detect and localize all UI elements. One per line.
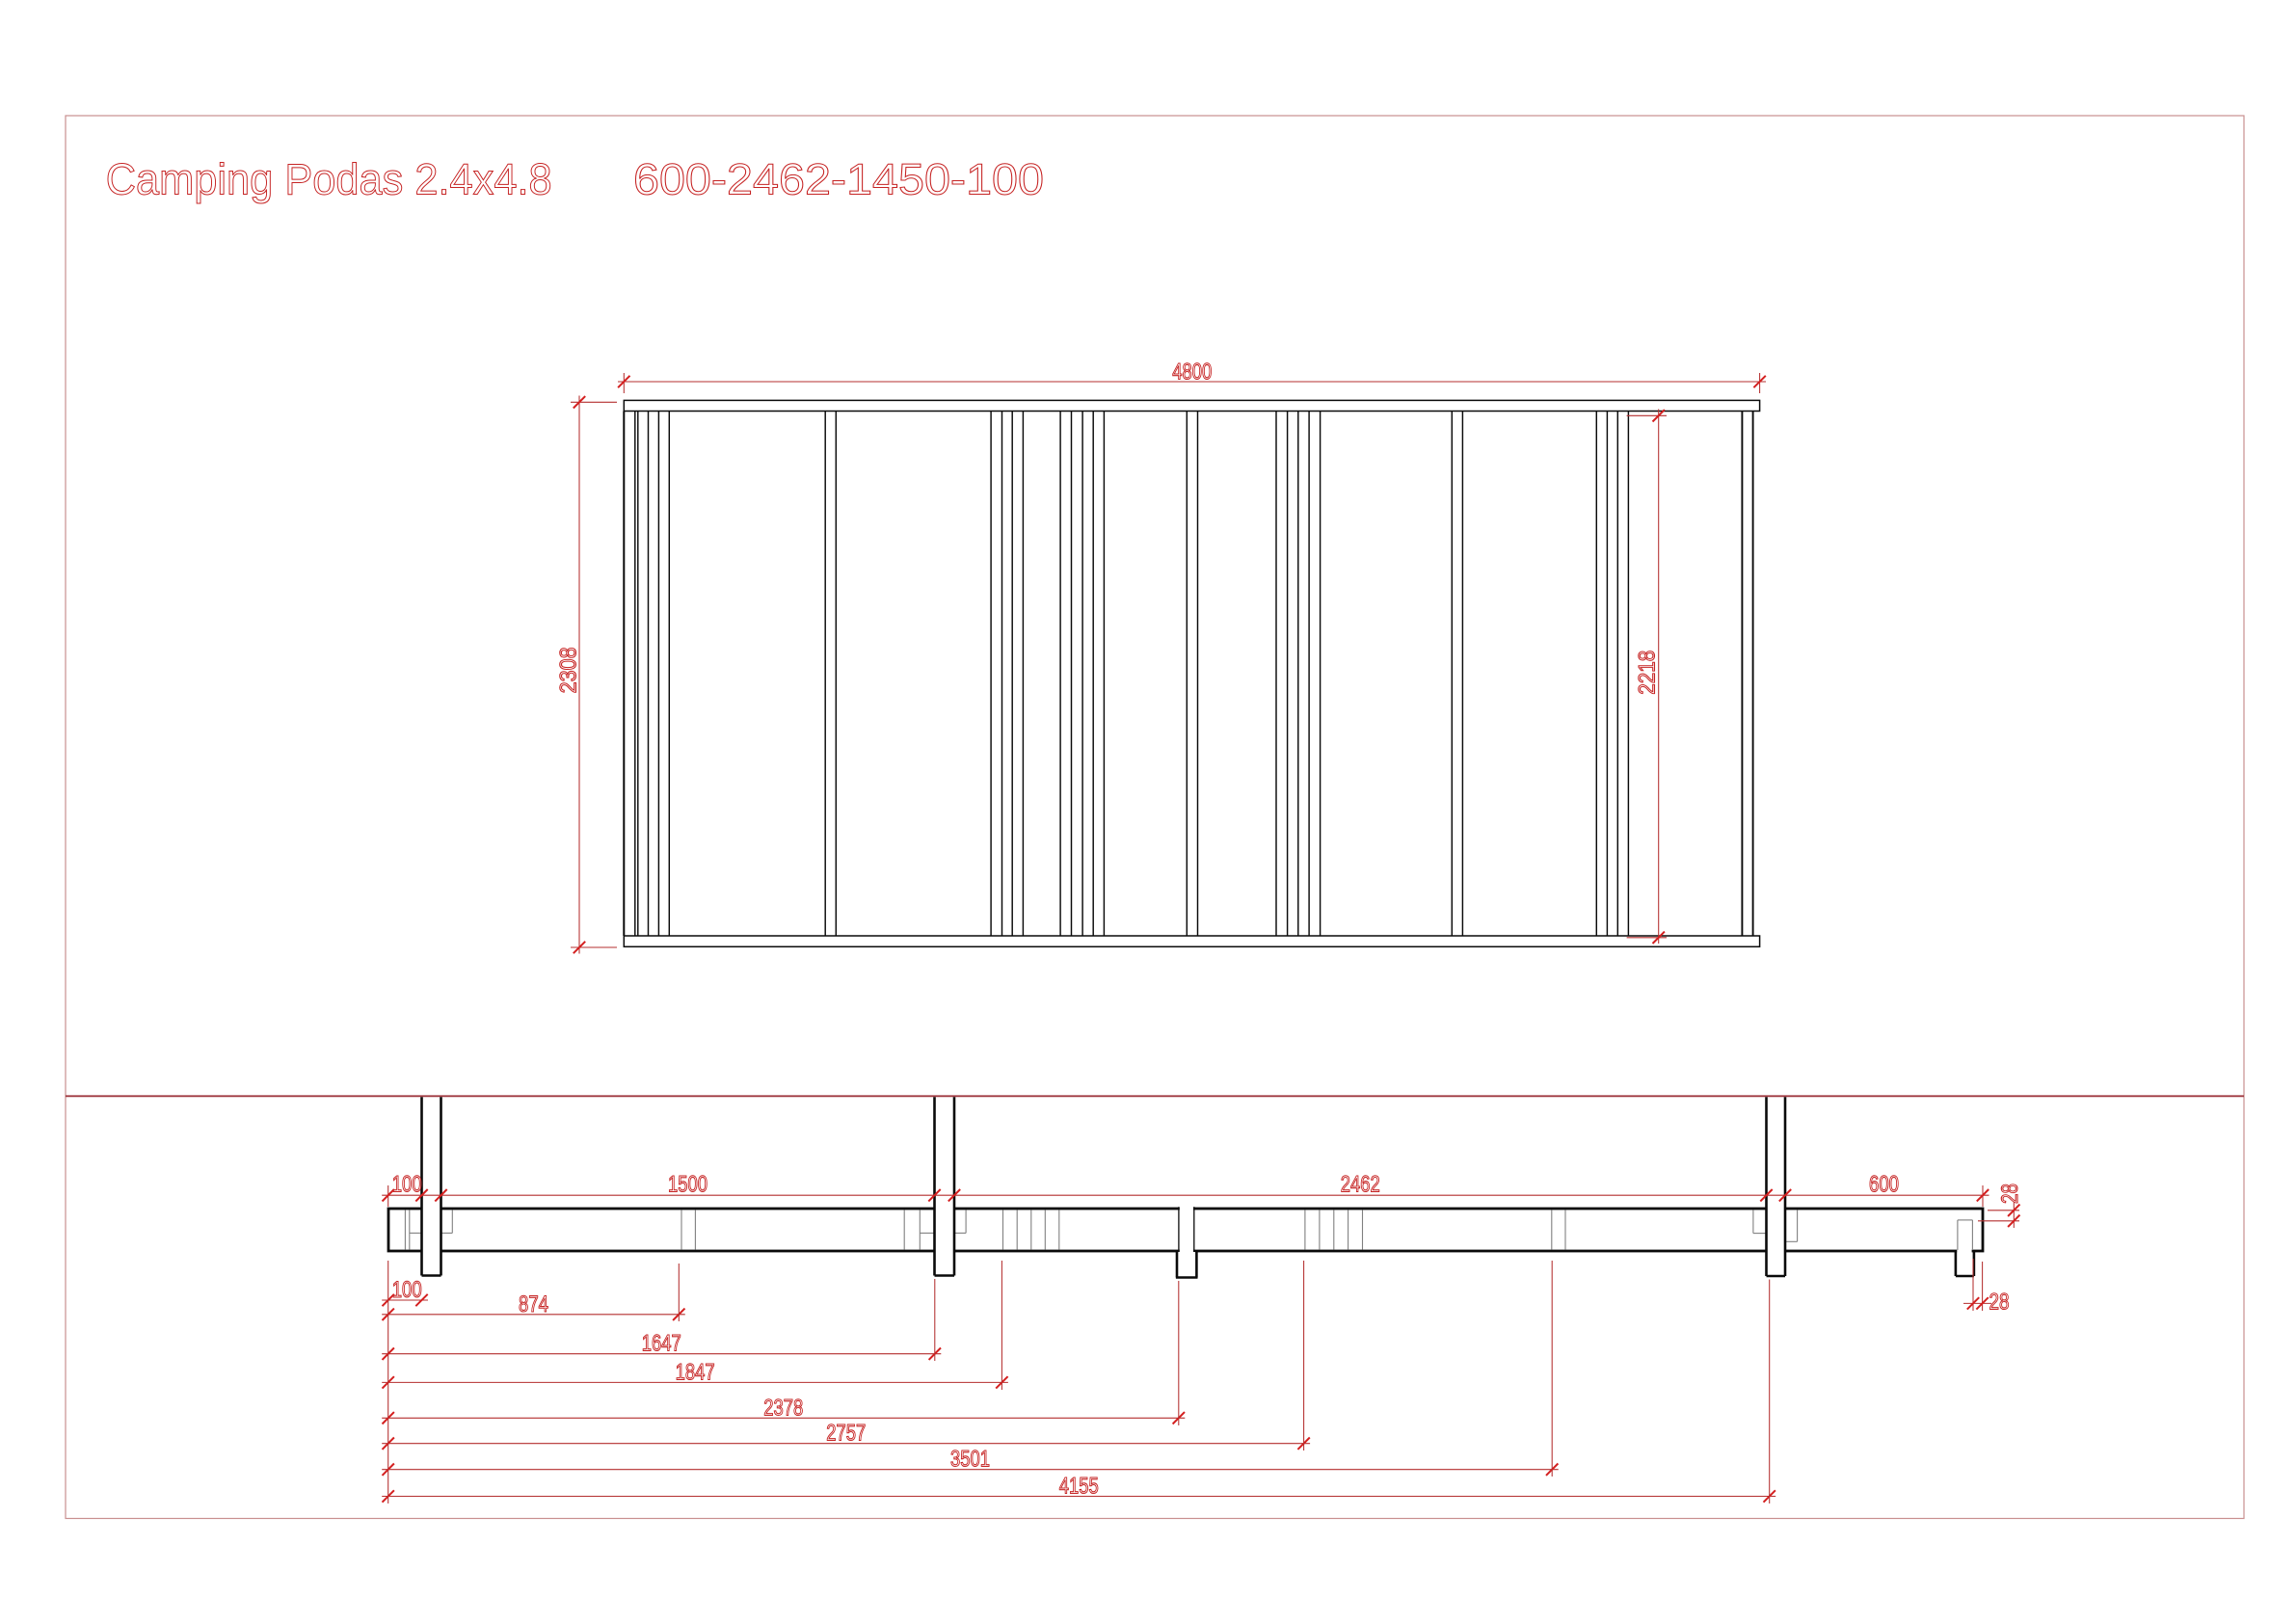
svg-text:4155: 4155 xyxy=(1059,1474,1099,1500)
svg-text:100: 100 xyxy=(392,1277,422,1303)
svg-text:Camping Podas 2.4x4.8: Camping Podas 2.4x4.8 xyxy=(106,155,552,204)
svg-text:874: 874 xyxy=(519,1291,548,1317)
svg-text:4800: 4800 xyxy=(1172,359,1212,386)
svg-text:2218: 2218 xyxy=(1635,651,1661,695)
svg-text:3501: 3501 xyxy=(950,1447,990,1473)
svg-text:600: 600 xyxy=(1869,1172,1899,1198)
svg-text:1847: 1847 xyxy=(676,1359,715,1385)
svg-text:2462: 2462 xyxy=(1341,1172,1380,1198)
svg-text:2378: 2378 xyxy=(763,1395,803,1421)
svg-text:28: 28 xyxy=(1997,1184,2023,1204)
svg-text:600-2462-1450-100: 600-2462-1450-100 xyxy=(633,155,1044,204)
svg-text:2757: 2757 xyxy=(826,1421,866,1447)
svg-text:28: 28 xyxy=(1989,1290,2010,1316)
svg-text:100: 100 xyxy=(392,1172,422,1198)
svg-text:1647: 1647 xyxy=(642,1331,681,1357)
svg-text:2308: 2308 xyxy=(556,647,582,693)
svg-text:1500: 1500 xyxy=(668,1172,707,1198)
